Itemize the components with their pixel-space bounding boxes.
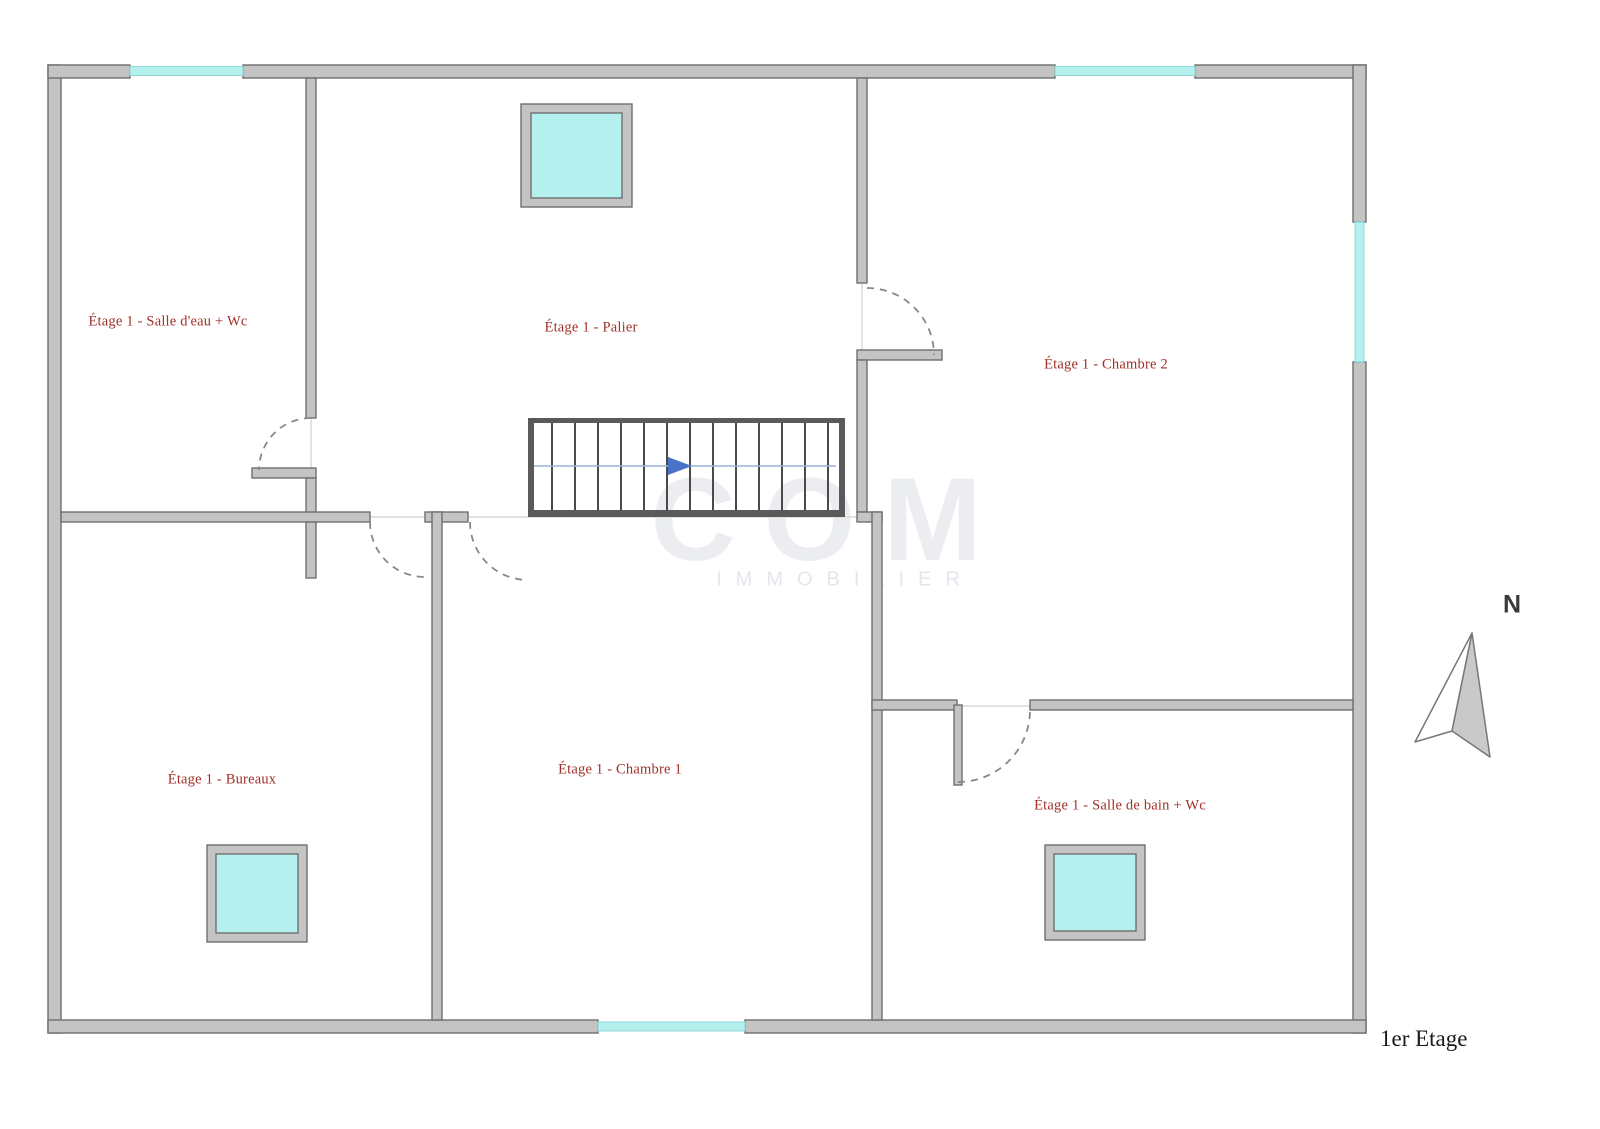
door-arc-chambre1 xyxy=(470,522,528,580)
wall-stub-bureaux xyxy=(306,522,316,578)
wall-salledeau-door-return xyxy=(252,468,316,478)
stairs xyxy=(528,418,845,517)
window-top-right xyxy=(1055,67,1195,76)
wall-right-segment-2 xyxy=(1353,362,1366,1033)
door-arc-bureaux xyxy=(370,522,425,577)
window-top-left xyxy=(130,67,243,76)
room-label-chambre-1: Étage 1 - Chambre 1 xyxy=(558,762,682,779)
floor-title: 1er Etage xyxy=(1380,1026,1467,1052)
window-right xyxy=(1355,222,1364,362)
wall-palier-chambre2-lower xyxy=(857,360,867,512)
wall-bottom-segment-1 xyxy=(48,1020,598,1033)
wall-chambre2-door-return xyxy=(857,350,942,360)
wall-palier-chambre2-upper xyxy=(857,78,867,283)
wall-sdb-door-leaf xyxy=(954,705,962,785)
door-arc-salledebain xyxy=(958,710,1030,782)
wall-chambre2-sdb-right xyxy=(1030,700,1353,710)
compass-north-label: N xyxy=(1503,591,1521,620)
room-label-salle-deau-wc: Étage 1 - Salle d'eau + Wc xyxy=(88,314,247,331)
room-label-salle-de-bain-wc: Étage 1 - Salle de bain + Wc xyxy=(1034,798,1206,815)
stairs-rail-left xyxy=(528,418,534,517)
wall-mid-left xyxy=(61,512,370,522)
stairs-rail-bottom xyxy=(528,510,845,517)
wall-top-segment-2 xyxy=(243,65,1055,78)
wall-bottom-segment-2 xyxy=(745,1020,1366,1033)
wall-chambre2-sdb-left xyxy=(872,700,957,710)
threshold-lines xyxy=(311,283,1030,706)
window-bottom xyxy=(598,1022,745,1031)
wall-right-segment-1 xyxy=(1353,65,1366,222)
floor-plan-drawing xyxy=(0,0,1600,1129)
room-label-palier: Étage 1 - Palier xyxy=(545,320,638,337)
stairs-direction-arrow-icon xyxy=(668,457,692,475)
floor-plan-page: COM IMMOBILIER xyxy=(0,0,1600,1129)
skylight-salledebain xyxy=(1045,845,1145,940)
wall-salledeau-palier-upper xyxy=(306,78,316,418)
wall-bureaux-chambre1 xyxy=(432,512,442,1020)
skylight-bureaux xyxy=(207,845,307,942)
wall-top-segment-3 xyxy=(1195,65,1366,78)
room-label-chambre-2: Étage 1 - Chambre 2 xyxy=(1044,357,1168,374)
stairs-rail-right xyxy=(839,418,845,517)
door-arc-salledeau xyxy=(259,418,311,470)
room-label-bureaux: Étage 1 - Bureaux xyxy=(168,772,276,789)
skylights xyxy=(207,104,1145,942)
wall-chambre1-right xyxy=(872,512,882,1020)
door-arc-chambre2 xyxy=(867,288,934,355)
wall-top-segment-1 xyxy=(48,65,130,78)
wall-left xyxy=(48,65,61,1033)
stairs-rail-top xyxy=(528,418,845,423)
skylight-palier xyxy=(521,104,632,207)
north-arrow-icon xyxy=(1415,633,1490,757)
